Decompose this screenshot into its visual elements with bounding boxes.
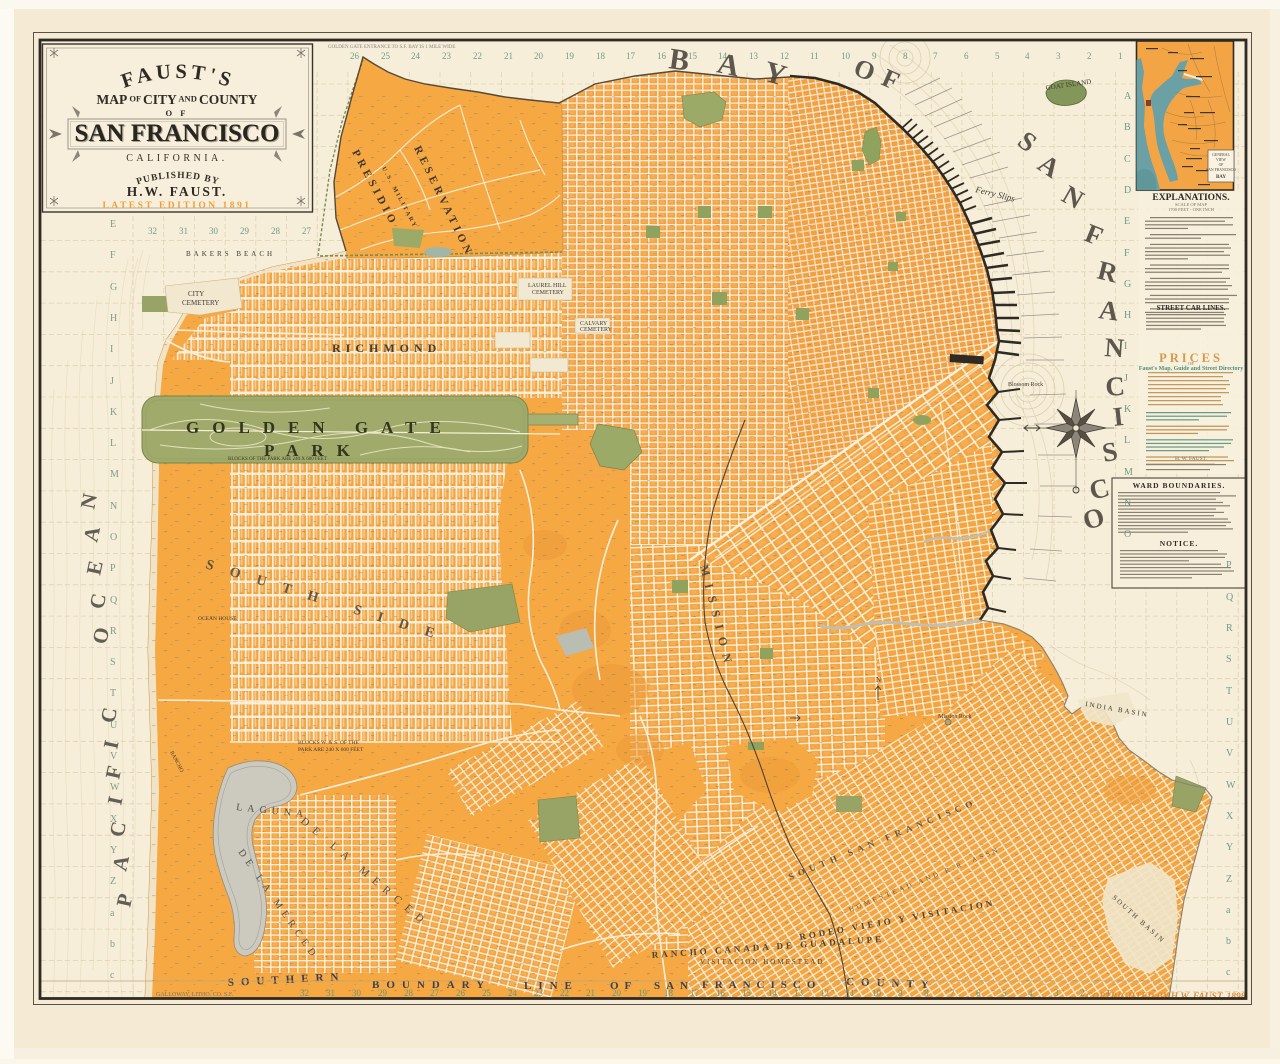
svg-text:b: b bbox=[1226, 936, 1231, 947]
svg-text:A: A bbox=[1124, 91, 1132, 102]
svg-text:L: L bbox=[1124, 435, 1130, 446]
svg-text:10: 10 bbox=[841, 51, 851, 61]
svg-text:4: 4 bbox=[1025, 51, 1030, 61]
svg-text:N: N bbox=[1124, 498, 1131, 509]
svg-text:LATEST EDITION 1891: LATEST EDITION 1891 bbox=[102, 201, 251, 211]
svg-text:31: 31 bbox=[179, 226, 188, 236]
svg-text:7: 7 bbox=[933, 51, 938, 61]
svg-text:W: W bbox=[1226, 780, 1236, 791]
svg-text:6: 6 bbox=[976, 988, 981, 998]
svg-text:16: 16 bbox=[657, 51, 667, 61]
svg-text:O: O bbox=[1124, 529, 1131, 540]
svg-text:F: F bbox=[110, 250, 116, 261]
svg-text:S: S bbox=[1226, 654, 1232, 665]
svg-text:J: J bbox=[1124, 373, 1128, 384]
svg-text:L: L bbox=[110, 438, 116, 449]
svg-text:E: E bbox=[1124, 216, 1130, 227]
svg-text:Z: Z bbox=[1226, 874, 1232, 885]
svg-text:19: 19 bbox=[565, 51, 575, 61]
svg-text:VIEW: VIEW bbox=[1216, 158, 1226, 162]
svg-text:LAUREL HILL: LAUREL HILL bbox=[528, 283, 567, 289]
svg-text:Y: Y bbox=[1226, 842, 1233, 853]
svg-text:T: T bbox=[110, 688, 116, 699]
svg-text:5: 5 bbox=[1002, 988, 1007, 998]
svg-text:c: c bbox=[110, 970, 115, 981]
svg-text:a: a bbox=[110, 908, 115, 919]
svg-text:Z: Z bbox=[110, 876, 116, 887]
svg-text:G: G bbox=[1124, 279, 1131, 290]
svg-text:20: 20 bbox=[534, 51, 544, 61]
svg-text:Q: Q bbox=[1226, 592, 1234, 603]
svg-text:30: 30 bbox=[352, 988, 362, 998]
svg-text:WARD BOUNDARIES.: WARD BOUNDARIES. bbox=[1133, 481, 1226, 490]
svg-text:15: 15 bbox=[688, 51, 698, 61]
svg-text:30: 30 bbox=[209, 226, 219, 236]
svg-text:C: C bbox=[1124, 154, 1131, 165]
svg-text:COPYRIGHTED BY H.W. FAUST, 189: COPYRIGHTED BY H.W. FAUST, 1898. bbox=[1086, 992, 1248, 1002]
svg-text:P: P bbox=[1226, 560, 1232, 571]
svg-text:GOLDEN GATE: GOLDEN GATE bbox=[186, 418, 454, 437]
svg-text:N: N bbox=[1104, 332, 1126, 363]
svg-text:M: M bbox=[110, 469, 119, 480]
svg-text:18: 18 bbox=[596, 51, 606, 61]
svg-text:G: G bbox=[110, 282, 117, 293]
svg-text:STREET CAR LINES.: STREET CAR LINES. bbox=[1157, 304, 1226, 312]
svg-text:I: I bbox=[110, 344, 113, 355]
svg-text:b: b bbox=[110, 939, 115, 950]
svg-text:U: U bbox=[1226, 717, 1234, 728]
svg-text:T: T bbox=[1226, 686, 1232, 697]
svg-text:27: 27 bbox=[302, 226, 312, 236]
svg-text:NOTICE.: NOTICE. bbox=[1160, 539, 1198, 548]
svg-text:31: 31 bbox=[326, 988, 335, 998]
svg-text:3: 3 bbox=[1054, 988, 1059, 998]
svg-text:GALLOWAY, LITHO. CO. S.F.: GALLOWAY, LITHO. CO. S.F. bbox=[156, 992, 234, 998]
svg-text:17: 17 bbox=[626, 51, 636, 61]
svg-text:Y: Y bbox=[110, 845, 117, 856]
svg-text:J: J bbox=[110, 376, 114, 387]
svg-text:M: M bbox=[1124, 467, 1133, 478]
svg-text:BLOCKS OF THE PARK ARE 240 X 6: BLOCKS OF THE PARK ARE 240 X 600 FEET bbox=[228, 457, 327, 462]
svg-text:VISITACION HOMESTEAD: VISITACION HOMESTEAD bbox=[700, 958, 824, 966]
svg-text:W: W bbox=[110, 782, 120, 793]
svg-text:1: 1 bbox=[1118, 51, 1123, 61]
svg-text:SAN FRANCISCO: SAN FRANCISCO bbox=[75, 120, 280, 147]
svg-text:c: c bbox=[1226, 967, 1231, 978]
svg-text:25: 25 bbox=[381, 51, 391, 61]
svg-text:O: O bbox=[110, 532, 117, 543]
svg-text:X: X bbox=[110, 814, 118, 825]
svg-text:D: D bbox=[1124, 185, 1131, 196]
svg-text:8: 8 bbox=[903, 51, 908, 61]
svg-text:C: C bbox=[1104, 371, 1126, 402]
svg-text:9: 9 bbox=[872, 51, 877, 61]
svg-text:3: 3 bbox=[1056, 51, 1061, 61]
svg-text:7: 7 bbox=[950, 988, 955, 998]
svg-text:OF: OF bbox=[1219, 163, 1224, 167]
svg-text:32: 32 bbox=[148, 226, 157, 236]
svg-text:E: E bbox=[110, 219, 116, 230]
svg-text:GENERAL: GENERAL bbox=[1212, 153, 1230, 157]
svg-text:H: H bbox=[1124, 310, 1131, 321]
svg-text:U: U bbox=[110, 720, 118, 731]
svg-text:24: 24 bbox=[508, 988, 518, 998]
svg-text:RICHMOND: RICHMOND bbox=[332, 341, 441, 355]
svg-text:CALIFORNIA.: CALIFORNIA. bbox=[126, 153, 228, 164]
svg-text:Blossom Rock: Blossom Rock bbox=[1008, 382, 1043, 388]
svg-text:21: 21 bbox=[586, 988, 595, 998]
svg-text:10: 10 bbox=[872, 988, 882, 998]
svg-text:4: 4 bbox=[1028, 988, 1033, 998]
svg-text:BAKERS BEACH: BAKERS BEACH bbox=[186, 250, 275, 258]
svg-text:LINE: LINE bbox=[524, 980, 579, 992]
svg-text:S: S bbox=[110, 657, 116, 668]
svg-text:2: 2 bbox=[1087, 51, 1092, 61]
svg-text:26: 26 bbox=[350, 51, 360, 61]
svg-text:O F: O F bbox=[166, 108, 189, 118]
svg-text:BLOCKS W. & S. OF THE: BLOCKS W. & S. OF THE bbox=[298, 740, 360, 746]
svg-text:Faust's Map, Guide and Street: Faust's Map, Guide and Street Directory bbox=[1139, 366, 1243, 372]
svg-text:V: V bbox=[1226, 748, 1234, 759]
svg-text:N: N bbox=[876, 676, 881, 684]
svg-text:K: K bbox=[1124, 404, 1132, 415]
svg-text:32: 32 bbox=[300, 988, 309, 998]
svg-text:2: 2 bbox=[1080, 988, 1085, 998]
svg-text:BAY: BAY bbox=[1216, 175, 1226, 180]
svg-text:6: 6 bbox=[964, 51, 969, 61]
svg-text:R: R bbox=[110, 626, 117, 637]
svg-text:12: 12 bbox=[780, 51, 789, 61]
svg-text:N: N bbox=[110, 501, 117, 512]
svg-text:PARK ARE 240 X 600 FEET: PARK ARE 240 X 600 FEET bbox=[298, 747, 364, 753]
svg-text:H. W. FAUST.: H. W. FAUST. bbox=[1175, 456, 1208, 462]
svg-text:V: V bbox=[110, 751, 118, 762]
svg-text:SAN FRANCISCO: SAN FRANCISCO bbox=[1206, 168, 1236, 172]
svg-text:H.W. FAUST.: H.W. FAUST. bbox=[127, 184, 228, 199]
svg-text:11: 11 bbox=[846, 988, 855, 998]
svg-text:5: 5 bbox=[995, 51, 1000, 61]
svg-text:P: P bbox=[110, 563, 116, 574]
svg-text:CEMETERY: CEMETERY bbox=[182, 299, 219, 307]
svg-text:28: 28 bbox=[271, 226, 281, 236]
svg-text:CEMETERY: CEMETERY bbox=[532, 290, 565, 296]
svg-text:B: B bbox=[1124, 122, 1131, 133]
svg-text:1700 FEET - ONE INCH: 1700 FEET - ONE INCH bbox=[1168, 207, 1215, 212]
svg-text:11: 11 bbox=[810, 51, 819, 61]
svg-text:F: F bbox=[1124, 248, 1130, 259]
svg-text:CEMETERY: CEMETERY bbox=[580, 327, 613, 333]
svg-text:X: X bbox=[1226, 811, 1234, 822]
svg-text:23: 23 bbox=[442, 51, 452, 61]
svg-text:Q: Q bbox=[110, 595, 118, 606]
svg-text:I: I bbox=[1124, 341, 1127, 352]
svg-text:K: K bbox=[110, 407, 118, 418]
svg-text:CITY: CITY bbox=[188, 290, 204, 298]
svg-text:21: 21 bbox=[504, 51, 513, 61]
svg-text:Mission Rock: Mission Rock bbox=[938, 714, 972, 720]
svg-text:OCEAN HOUSE: OCEAN HOUSE bbox=[198, 616, 237, 622]
svg-text:SAN: SAN bbox=[654, 980, 694, 992]
svg-text:22: 22 bbox=[473, 51, 482, 61]
svg-text:a: a bbox=[1226, 905, 1231, 916]
svg-text:19: 19 bbox=[638, 988, 648, 998]
svg-text:29: 29 bbox=[240, 226, 250, 236]
svg-text:24: 24 bbox=[411, 51, 421, 61]
svg-text:14: 14 bbox=[718, 51, 728, 61]
svg-text:H: H bbox=[110, 313, 117, 324]
svg-text:GOLDEN GATE ENTRANCE TO S.F. B: GOLDEN GATE ENTRANCE TO S.F. BAY IS 1 MI… bbox=[328, 45, 455, 50]
svg-text:OF: OF bbox=[610, 980, 637, 992]
svg-text:R: R bbox=[1226, 623, 1233, 634]
svg-text:13: 13 bbox=[749, 51, 759, 61]
